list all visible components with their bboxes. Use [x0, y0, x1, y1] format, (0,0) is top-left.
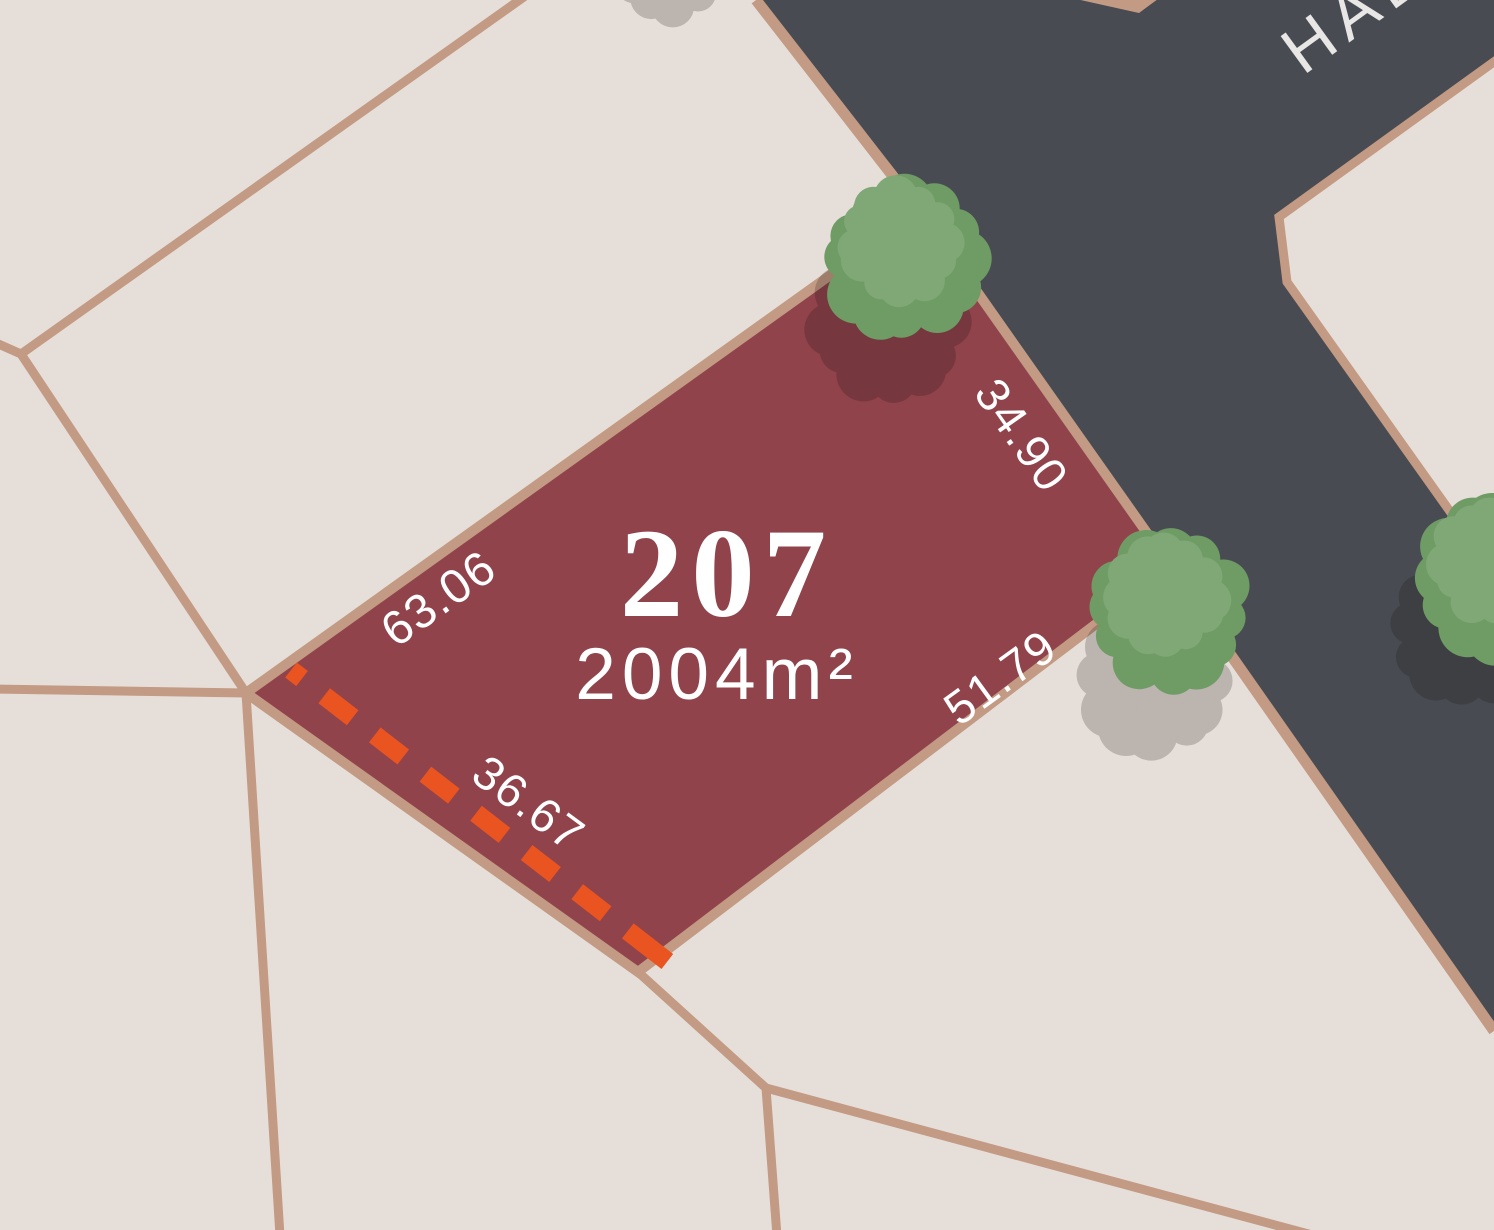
- svg-text:207: 207: [620, 504, 835, 644]
- svg-text:2004m²: 2004m²: [575, 634, 859, 715]
